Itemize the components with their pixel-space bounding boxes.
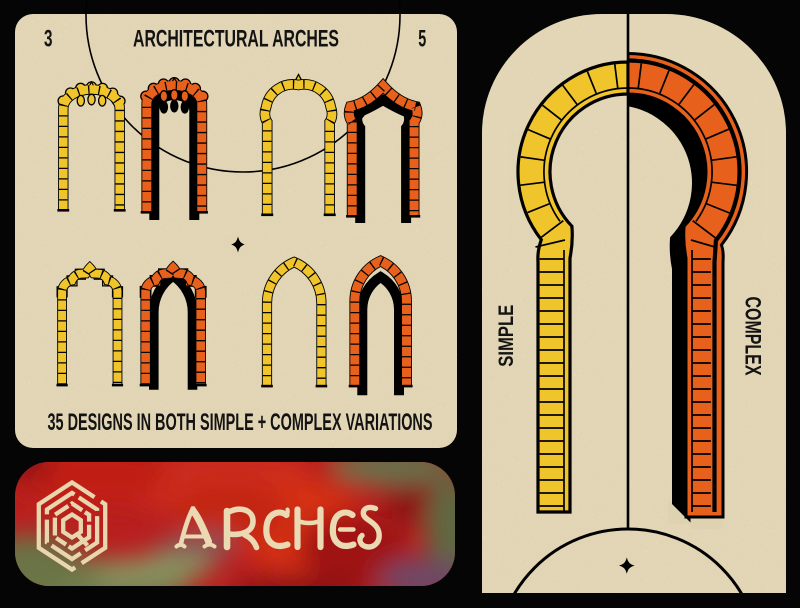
svg-text:35 DESIGNS IN BOTH SIMPLE + CO: 35 DESIGNS IN BOTH SIMPLE + COMPLEX VARI… xyxy=(48,409,433,436)
svg-text:SIMPLE: SIMPLE xyxy=(494,305,518,367)
svg-text:3: 3 xyxy=(44,26,53,53)
svg-text:ARCHITECTURAL ARCHES: ARCHITECTURAL ARCHES xyxy=(133,26,339,53)
svg-text:5: 5 xyxy=(418,26,426,53)
svg-text:COMPLEX: COMPLEX xyxy=(741,297,766,376)
